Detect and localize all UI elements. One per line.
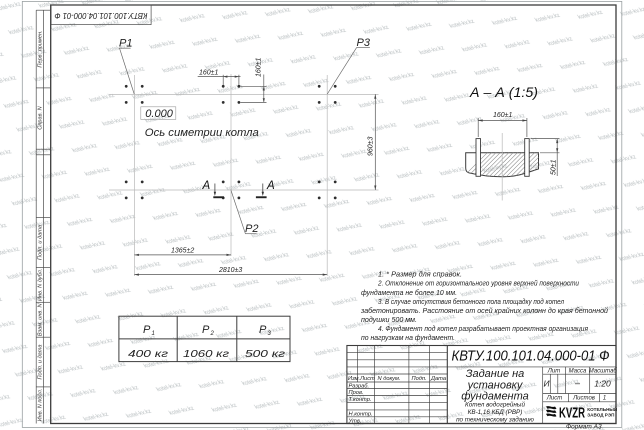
svg-text:Подп.: Подп. <box>412 376 427 382</box>
svg-text:2: 2 <box>210 331 215 337</box>
svg-text:подушки 500 мм.: подушки 500 мм. <box>361 315 417 324</box>
svg-text:KVZR: KVZR <box>559 406 585 422</box>
svg-text:2810±3: 2810±3 <box>218 267 242 274</box>
svg-text:по техническому заданию: по техническому заданию <box>456 415 534 423</box>
svg-text:Р: Р <box>143 324 151 336</box>
svg-text:КОТЕЛЬНЫЙ: КОТЕЛЬНЫЙ <box>587 405 617 412</box>
svg-text:забетонировать. Расстояние от: забетонировать. Расстояние от осей крайн… <box>360 306 609 315</box>
svg-text:Ось симетрии котла: Ось симетрии котла <box>145 127 259 139</box>
svg-text:фундамента не более 10 мм.: фундамента не более 10 мм. <box>361 288 457 297</box>
svg-text:Инв. N подл.: Инв. N подл. <box>38 389 44 422</box>
svg-text:1. * Размер для справок.: 1. * Размер для справок. <box>378 269 462 278</box>
svg-text:Лист: Лист <box>546 396 562 402</box>
svg-text:160±1: 160±1 <box>493 112 513 119</box>
svg-text:Дата: Дата <box>430 376 446 382</box>
svg-text:1365±2: 1365±2 <box>171 247 194 254</box>
svg-text:500 кг: 500 кг <box>245 348 285 360</box>
svg-text:Формат А3: Формат А3 <box>566 423 602 430</box>
svg-text:2. Отклонение от горизонтально: 2. Отклонение от горизонтального уровня … <box>377 279 579 288</box>
svg-text:Масштаб: Масштаб <box>589 369 618 375</box>
svg-text:1060 кг: 1060 кг <box>183 348 229 360</box>
svg-text:1:20: 1:20 <box>594 379 611 389</box>
svg-text:Лит: Лит <box>547 369 560 375</box>
svg-text:А: А <box>266 180 275 192</box>
svg-text:160±1: 160±1 <box>256 57 263 77</box>
svg-text:КВТУ.100.101.04.000-01 Ф: КВТУ.100.101.04.000-01 Ф <box>452 349 610 365</box>
svg-text:P1: P1 <box>119 38 132 50</box>
svg-text:Пров.: Пров. <box>349 390 364 396</box>
svg-text:–: – <box>574 378 581 388</box>
svg-text:Р: Р <box>259 324 267 336</box>
svg-text:Изм.Лист: Изм.Лист <box>348 376 375 382</box>
svg-text:ЗАВОД РЭП: ЗАВОД РЭП <box>587 413 614 418</box>
svg-text:Подп. и дата: Подп. и дата <box>38 225 44 260</box>
svg-text:Н.контр.: Н.контр. <box>349 412 373 418</box>
svg-text:Т.контр.: Т.контр. <box>349 397 372 403</box>
svg-text:Подп. и дата: Подп. и дата <box>38 344 44 379</box>
svg-text:Утв.: Утв. <box>348 418 362 424</box>
svg-text:Взам. инв. N: Взам. инв. N <box>38 303 44 337</box>
svg-text:Перв. примен.: Перв. примен. <box>38 30 44 67</box>
svg-text:Р: Р <box>202 324 210 336</box>
svg-text:Инв. N дубл.: Инв. N дубл. <box>38 269 44 301</box>
svg-text:Разраб.: Разраб. <box>349 383 370 389</box>
svg-text:Справ. N: Справ. N <box>38 105 44 129</box>
svg-text:N докум.: N докум. <box>378 376 401 382</box>
svg-text:960±3: 960±3 <box>367 136 374 156</box>
svg-text:КВ-1,16 КБД (РВР): КВ-1,16 КБД (РВР) <box>468 409 523 416</box>
svg-text:400 кг: 400 кг <box>128 348 168 360</box>
svg-text:по нагрузкам на фундамент.: по нагрузкам на фундамент. <box>361 333 455 342</box>
svg-text:А – А (1:5): А – А (1:5) <box>469 85 538 100</box>
svg-text:Задание на: Задание на <box>466 368 525 380</box>
svg-text:160±1: 160±1 <box>199 70 219 77</box>
svg-text:4. Фундамент под котел разраба: 4. Фундамент под котел разрабатывает про… <box>378 324 588 333</box>
svg-text:3. В случае отсутствия бетонно: 3. В случае отсутствия бетонного пола пл… <box>378 297 565 306</box>
svg-text:1: 1 <box>152 331 155 337</box>
svg-text:Р3: Р3 <box>357 37 371 49</box>
svg-text:Масса: Масса <box>569 369 587 375</box>
svg-text:А: А <box>202 180 211 192</box>
svg-text:0.000: 0.000 <box>145 108 173 120</box>
svg-text:Листов: Листов <box>572 396 595 402</box>
svg-text:Р2: Р2 <box>245 223 258 235</box>
svg-text:Котел водогрейный: Котел водогрейный <box>465 400 525 408</box>
svg-text:И: И <box>543 379 550 389</box>
svg-text:50±1: 50±1 <box>551 159 558 175</box>
svg-text:1: 1 <box>603 396 606 402</box>
svg-text:КВТУ.100.101.04.000-01 Ф: КВТУ.100.101.04.000-01 Ф <box>54 11 147 20</box>
